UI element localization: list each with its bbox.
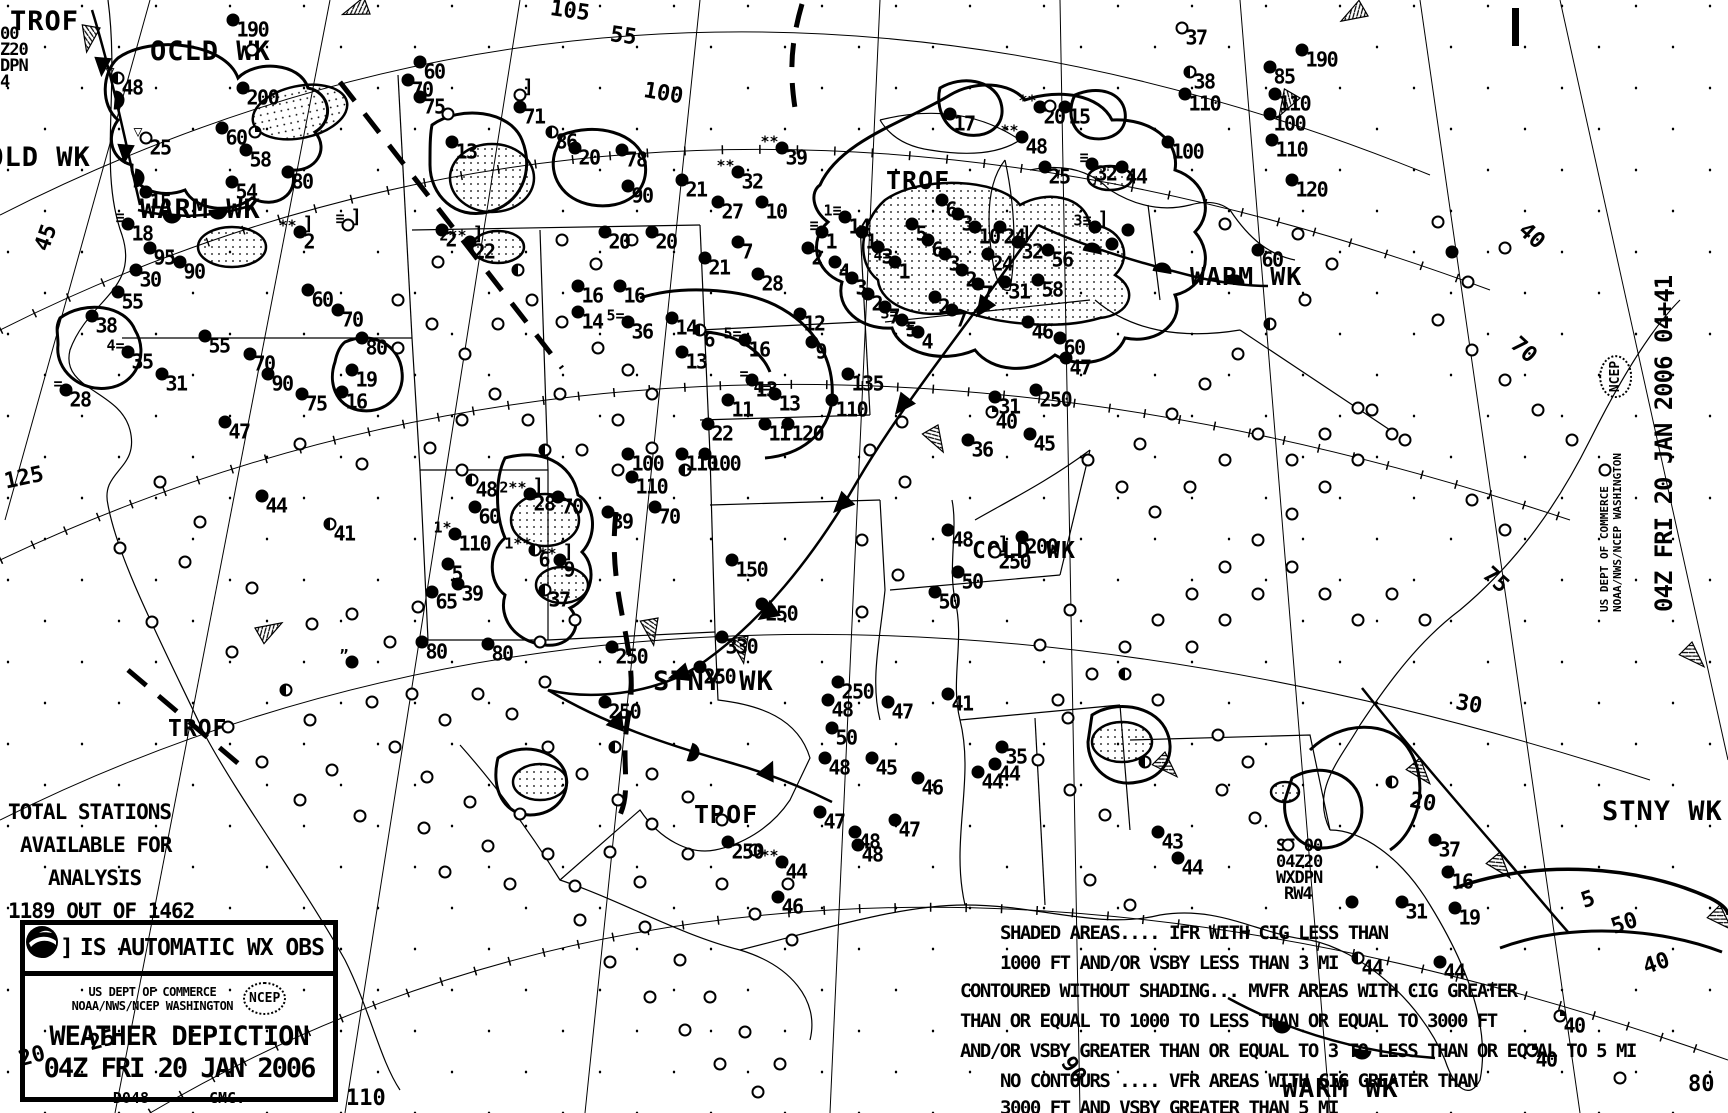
station-marker-icon <box>542 741 555 754</box>
station-plot: 120 <box>1286 174 1299 187</box>
station-value: 47 <box>1070 358 1091 378</box>
ncep-logo-side: NCEP <box>1600 354 1633 397</box>
station-plot <box>1082 454 1095 467</box>
station-plot: 44 <box>1352 952 1365 965</box>
station-value: 70 <box>342 310 363 330</box>
station-value: 30 <box>140 270 161 290</box>
station-value: 200 <box>247 88 279 108</box>
station-marker-icon <box>246 582 259 595</box>
station-plot: 39 <box>452 578 465 591</box>
wx-symbol: 3≡ <box>1073 214 1091 229</box>
station-plot <box>1352 402 1365 415</box>
station-marker-icon <box>682 848 695 861</box>
station-value: 11 <box>732 400 753 420</box>
station-value: 40 <box>1536 1050 1557 1070</box>
station-plot: 5 <box>906 218 919 231</box>
station-marker-icon <box>634 876 647 889</box>
station-value: 48 <box>122 78 143 98</box>
station-marker-icon <box>679 1024 692 1037</box>
station-marker-icon <box>554 388 567 401</box>
station-marker-icon <box>1466 344 1479 357</box>
station-marker-icon <box>1099 809 1112 822</box>
station-value: 24 <box>992 254 1013 274</box>
station-plot: 100 <box>1264 108 1277 121</box>
station-marker-icon <box>482 840 495 853</box>
station-plot: 71 <box>514 101 527 114</box>
station-plot: 4=35 <box>122 346 135 359</box>
station-plot <box>249 126 262 139</box>
station-marker-icon <box>539 676 552 689</box>
station-plot <box>421 771 434 784</box>
station-marker-icon <box>576 768 589 781</box>
station-plot: 38 <box>86 310 99 323</box>
station-plot: ▽48 <box>112 72 125 85</box>
station-value: 250 <box>732 842 764 862</box>
station-plot <box>514 808 527 821</box>
station-plot: 50 <box>826 722 839 735</box>
station-plot: 58 <box>1032 274 1045 287</box>
wx-symbol: = <box>839 265 848 280</box>
station-plot <box>896 416 909 429</box>
station-plot: 47 <box>814 806 827 819</box>
station-marker-icon <box>539 444 552 457</box>
station-marker-icon <box>464 796 477 809</box>
wx-symbol: = <box>739 367 748 382</box>
station-value: 58 <box>250 150 271 170</box>
d-code: D048 <box>113 1091 149 1106</box>
station-value: 110 <box>1279 94 1311 114</box>
station-plot <box>1532 404 1545 417</box>
grid-coordinate-label: 80 <box>1688 1072 1715 1097</box>
station-plot: **44 <box>776 856 789 869</box>
station-marker-icon <box>346 608 359 621</box>
station-value: 44 <box>999 764 1020 784</box>
station-marker-icon <box>1386 428 1399 441</box>
station-marker-icon <box>1119 668 1132 681</box>
station-marker-icon <box>1152 614 1165 627</box>
station-plot <box>354 810 367 823</box>
station-value: 28 <box>70 390 91 410</box>
station-marker-icon <box>1299 294 1312 307</box>
wx-symbol: 5= <box>606 309 624 324</box>
station-plot <box>786 934 799 947</box>
station-marker-icon <box>356 458 369 471</box>
station-value: 13 <box>779 394 800 414</box>
text-line: 3000 FT AND VSBY GREATER THAN 5 MI <box>1000 1095 1477 1113</box>
wx-symbol: ** <box>278 219 296 234</box>
station-value: 48 <box>1026 137 1047 157</box>
station-value: 13 <box>456 142 477 162</box>
station-plot <box>1499 242 1512 255</box>
station-plot <box>1466 344 1479 357</box>
station-marker-icon <box>294 438 307 451</box>
station-plot: ” <box>346 656 359 669</box>
station-value: 1 <box>899 262 910 282</box>
station-plot <box>1184 481 1197 494</box>
station-value: 31 <box>1406 902 1427 922</box>
station-plot <box>1499 524 1512 537</box>
station-plot: 190 <box>1296 44 1309 57</box>
station-value: 38 <box>96 316 117 336</box>
station-value: 19 <box>1459 908 1480 928</box>
station-plot <box>542 741 555 754</box>
station-plot: 2 <box>436 224 449 237</box>
station-plot <box>1566 434 1579 447</box>
wx-symbol: 4= <box>106 339 124 354</box>
station-plot: =3 <box>846 272 859 285</box>
station-plot: 60 <box>302 284 315 297</box>
station-plot: 46 <box>772 891 785 904</box>
station-plot: 48 <box>466 474 479 487</box>
station-plot <box>179 556 192 569</box>
station-marker-icon <box>421 771 434 784</box>
station-plot: 46 <box>912 772 925 785</box>
station-value: 37 <box>1186 28 1207 48</box>
station-marker-icon <box>556 234 569 247</box>
station-value: 47 <box>899 820 920 840</box>
station-plot: 48 <box>852 839 865 852</box>
station-marker-icon <box>1252 588 1265 601</box>
station-plot: 85 <box>1264 61 1277 74</box>
station-plot <box>612 464 625 477</box>
station-plot: 19 <box>346 364 359 377</box>
station-marker-icon <box>752 1086 765 1099</box>
station-value: 100 <box>1172 142 1204 162</box>
station-plot: ]250 <box>989 546 1002 559</box>
station-plot: 110 <box>1179 88 1192 101</box>
station-value: 16 <box>624 286 645 306</box>
station-value: 46 <box>922 778 943 798</box>
station-value: 48 <box>476 480 497 500</box>
station-value: 50 <box>939 592 960 612</box>
station-marker-icon <box>1116 481 1129 494</box>
station-plot <box>506 708 519 721</box>
station-marker-icon <box>1319 588 1332 601</box>
station-value: 32 <box>742 172 763 192</box>
station-marker-icon <box>592 342 605 355</box>
station-plot: 10 <box>756 196 769 209</box>
station-marker-icon <box>249 126 262 139</box>
station-plot <box>574 914 587 927</box>
map-label: STNY WK <box>1602 796 1723 827</box>
station-plot <box>534 636 547 649</box>
station-value: 27 <box>722 202 743 222</box>
station-marker-icon <box>1034 639 1047 652</box>
station-plot: 25 <box>1039 161 1052 174</box>
text-line: 1000 FT AND/OR VSBY LESS THAN 3 MI <box>1000 948 1388 978</box>
station-plot <box>1199 378 1212 391</box>
station-marker-icon <box>154 476 167 489</box>
station-plot: 17 <box>944 108 957 121</box>
station-plot: 2 <box>956 264 969 277</box>
station-marker-icon <box>146 616 159 629</box>
station-plot <box>356 458 369 471</box>
station-plot <box>1232 348 1245 361</box>
station-marker-icon <box>622 364 635 377</box>
station-marker-icon <box>1346 896 1359 909</box>
station-plot: 50 <box>929 586 942 599</box>
station-value: 10 <box>979 227 1000 247</box>
agency-lines: US DEPT OF COMMERCE NOAA/NWS/NCEP WASHIN… <box>72 985 233 1013</box>
station-plot: 200 <box>1016 531 1029 544</box>
station-plot <box>246 582 259 595</box>
station-value: 44 <box>786 862 807 882</box>
station-plot <box>1219 454 1232 467</box>
station-value: 44 <box>266 496 287 516</box>
station-plot <box>739 1026 752 1039</box>
station-value: 38 <box>1194 72 1215 92</box>
station-value: 32 <box>1096 164 1117 184</box>
station-plot: 250 <box>1030 384 1043 397</box>
station-marker-icon <box>892 569 905 582</box>
station-plot <box>472 688 485 701</box>
station-marker-icon <box>472 688 485 701</box>
station-plot <box>864 444 877 457</box>
station-plot: 70 <box>649 501 662 514</box>
station-marker-icon <box>1134 438 1147 451</box>
station-plot <box>716 814 729 827</box>
station-plot <box>634 876 647 889</box>
station-plot: 48 <box>849 826 862 839</box>
station-plot <box>576 444 589 457</box>
station-plot: 2 <box>929 291 942 304</box>
station-value: 25 <box>150 138 171 158</box>
station-value: 135 <box>852 374 884 394</box>
station-plot: 14 <box>666 312 679 325</box>
wx-symbol: ≡ <box>809 219 818 234</box>
grid-coordinate-label: 55 <box>609 22 639 50</box>
wx-symbol: 2** <box>499 481 526 496</box>
station-marker-icon <box>514 808 527 821</box>
side-datetime: 04Z FRI 20 JAN 2006 04+41 <box>1652 276 1676 612</box>
station-plot: 54 <box>226 176 239 189</box>
station-plot <box>592 342 605 355</box>
station-marker-icon <box>326 764 339 777</box>
wx-symbol: ≡ <box>335 212 344 227</box>
station-marker-icon <box>774 1058 787 1071</box>
station-plot: ]≡ <box>342 219 355 232</box>
station-plot <box>1286 454 1299 467</box>
station-plot <box>1252 428 1265 441</box>
station-plot: 4=1 <box>889 256 902 269</box>
text-line: ANALYSIS <box>48 862 194 895</box>
station-plot <box>1386 776 1399 789</box>
station-plot: 330 <box>716 631 729 644</box>
station-value: 90 <box>272 374 293 394</box>
station-plot: 11 <box>759 418 772 431</box>
station-plot <box>1286 508 1299 521</box>
wx-symbol: 1** <box>504 537 531 552</box>
station-plot <box>512 264 525 277</box>
station-marker-icon <box>646 768 659 781</box>
text-line: 4 <box>0 74 28 90</box>
station-plot <box>682 848 695 861</box>
station-marker-icon <box>1084 874 1097 887</box>
station-plot: 11 <box>722 394 735 407</box>
station-plot: 78 <box>616 144 629 157</box>
wx-symbol: ” <box>339 649 348 664</box>
station-plot <box>1319 481 1332 494</box>
station-value: 15 <box>1069 107 1090 127</box>
station-marker-icon <box>294 794 307 807</box>
station-marker-icon <box>704 991 717 1004</box>
station-plot: 60 <box>216 122 229 135</box>
station-plot <box>366 696 379 709</box>
station-plot <box>459 348 472 361</box>
station-plot: 3 <box>939 248 952 261</box>
station-value: 16 <box>346 392 367 412</box>
station-marker-icon <box>1232 348 1245 361</box>
station-value: 22 <box>712 424 733 444</box>
station-value: 65 <box>436 592 457 612</box>
station-marker-icon <box>1242 756 1255 769</box>
station-plot: 110 <box>676 448 689 461</box>
station-plot <box>612 794 625 807</box>
wx-symbol: ** <box>1000 124 1018 139</box>
station-marker-icon <box>1326 258 1339 271</box>
station-plot: 15 <box>140 186 153 199</box>
station-marker-icon <box>366 696 379 709</box>
station-value: 250 <box>999 552 1031 572</box>
station-plot: =28 <box>60 384 73 397</box>
station-marker-icon <box>389 741 402 754</box>
station-value: 250 <box>1040 390 1072 410</box>
station-value: 16 <box>1452 872 1473 892</box>
station-value: 60 <box>1262 250 1283 270</box>
station-plot <box>1119 641 1132 654</box>
station-plot <box>1432 314 1445 327</box>
station-plot: 75 <box>296 388 309 401</box>
station-plot <box>1352 614 1365 627</box>
station-marker-icon <box>604 846 617 859</box>
station-plot: 41 <box>324 518 337 531</box>
text-line: THAN OR EQUAL TO 1000 TO LESS THAN OR EQ… <box>960 1006 1636 1036</box>
station-plot <box>1219 561 1232 574</box>
station-marker-icon <box>426 318 439 331</box>
station-value: 78 <box>626 150 647 170</box>
station-value: 110 <box>1189 94 1221 114</box>
station-value: 35 <box>132 352 153 372</box>
station-marker-icon <box>280 684 293 697</box>
station-marker-icon <box>504 878 517 891</box>
station-marker-icon <box>574 914 587 927</box>
station-plot: 48 <box>822 694 835 707</box>
station-plot <box>1386 428 1399 441</box>
station-plot: 86 <box>546 126 559 139</box>
station-plot <box>899 476 912 489</box>
station-plot <box>1106 238 1119 251</box>
station-plot: 37 <box>1429 834 1442 847</box>
station-value: 60 <box>312 290 333 310</box>
station-marker-icon <box>1292 228 1305 241</box>
station-marker-icon <box>1082 454 1095 467</box>
station-value: 39 <box>462 584 483 604</box>
station-plot: 48 <box>819 752 832 765</box>
station-value: 41 <box>952 694 973 714</box>
station-marker-icon <box>432 256 445 269</box>
total-stations-note: TOTAL STATIONSAVAILABLE FORANALYSIS1189 … <box>8 796 194 928</box>
station-value: 39 <box>612 512 633 532</box>
station-marker-icon <box>424 442 437 455</box>
station-marker-icon <box>1532 404 1545 417</box>
station-plot: 95 <box>144 242 157 255</box>
wx-symbol: ** <box>760 849 778 864</box>
station-plot: 80 <box>482 638 495 651</box>
station-value: 6 <box>704 330 715 350</box>
station-plot <box>482 840 495 853</box>
station-marker-icon <box>569 614 582 627</box>
station-value: 2 <box>446 230 457 250</box>
station-plot <box>1292 228 1305 241</box>
station-value: 13 <box>686 352 707 372</box>
station-value: 48 <box>952 530 973 550</box>
station-plot <box>1319 588 1332 601</box>
station-plot: 2 <box>862 288 875 301</box>
map-label: TROF <box>886 166 950 195</box>
station-value: 28 <box>762 274 783 294</box>
station-plot: **39 <box>776 142 789 155</box>
station-value: 4 <box>922 332 933 352</box>
station-value: 48 <box>832 700 853 720</box>
station-marker-icon <box>1386 588 1399 601</box>
station-plot <box>226 646 239 659</box>
wx-symbol: ** <box>760 135 778 150</box>
station-plot: 5=36 <box>622 316 635 329</box>
station-value: 250 <box>616 647 648 667</box>
station-marker-icon <box>749 908 762 921</box>
station-plot: 90 <box>622 180 635 193</box>
text-line: CONTOURED WITHOUT SHADING... MVFR AREAS … <box>960 976 1636 1006</box>
station-plot: 4=13 <box>769 388 782 401</box>
station-plot <box>569 880 582 893</box>
station-plot: 39 <box>602 506 615 519</box>
station-plot <box>1032 754 1045 767</box>
station-plot <box>1166 408 1179 421</box>
station-value: 1 <box>826 232 837 252</box>
station-plot: 50 <box>952 566 965 579</box>
station-plot <box>674 954 687 967</box>
station-plot <box>392 342 405 355</box>
station-marker-icon <box>1419 614 1432 627</box>
station-marker-icon <box>1286 508 1299 521</box>
station-marker-icon <box>716 814 729 827</box>
station-plot <box>1419 614 1432 627</box>
station-plot: 58 <box>240 144 253 157</box>
station-plot <box>604 846 617 859</box>
station-marker-icon <box>609 741 622 754</box>
station-plot: 12 <box>794 308 807 321</box>
station-plot: 55 <box>199 330 212 343</box>
station-value: 18 <box>132 224 153 244</box>
station-plot <box>1152 614 1165 627</box>
station-plot: 80 <box>416 636 429 649</box>
station-plot <box>492 318 505 331</box>
station-plot: 14 <box>572 306 585 319</box>
station-plot: 75 <box>414 91 427 104</box>
station-value: 21 <box>709 258 730 278</box>
station-marker-icon <box>512 264 525 277</box>
station-marker-icon <box>1124 899 1137 912</box>
station-plot: 46 <box>1022 316 1035 329</box>
station-marker-icon <box>114 542 127 555</box>
station-marker-icon <box>1252 428 1265 441</box>
station-plot <box>526 294 539 307</box>
map-label: WARM WK <box>1282 1074 1399 1104</box>
station-marker-icon <box>1119 641 1132 654</box>
station-plot: 20 <box>569 142 582 155</box>
station-value: 7 <box>982 284 993 304</box>
station-value: 54 <box>236 182 257 202</box>
